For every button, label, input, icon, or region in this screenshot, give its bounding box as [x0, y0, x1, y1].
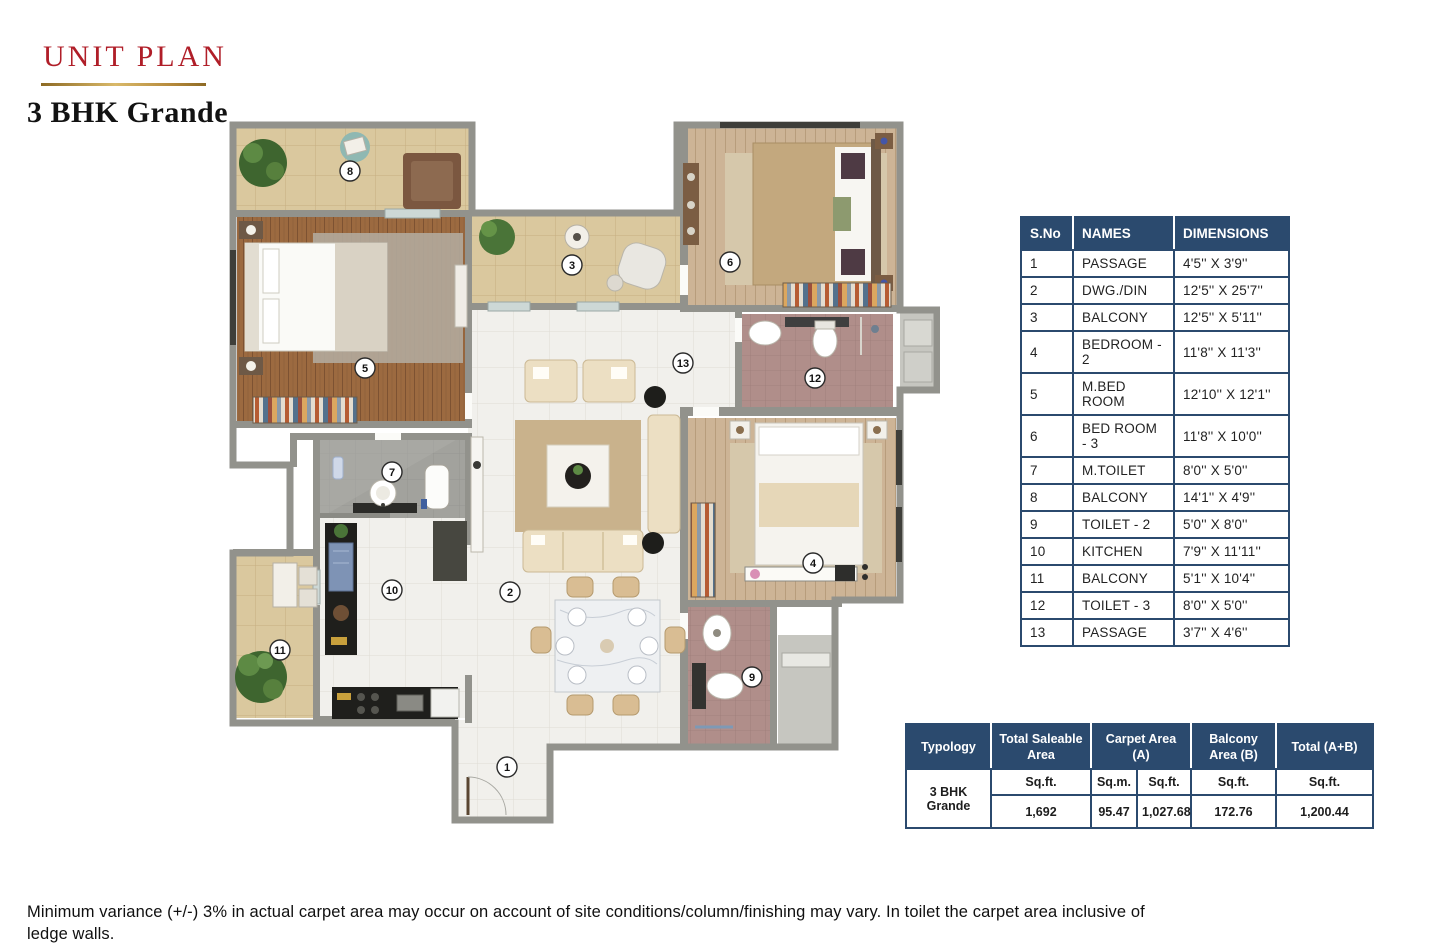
svg-text:8: 8 — [347, 166, 353, 178]
col-sno: S.No — [1021, 217, 1073, 250]
table-row: 6BED ROOM - 311'8'' X 10'0'' — [1021, 415, 1289, 457]
badge-room-10: 10 — [382, 580, 402, 600]
table-row: 3BALCONY12'5'' X 5'11'' — [1021, 304, 1289, 331]
unit-name: 3 BHK Grande — [27, 96, 228, 130]
svg-text:4: 4 — [810, 558, 817, 570]
utility-niche-top — [900, 313, 936, 387]
table-row: 7M.TOILET8'0'' X 5'0'' — [1021, 457, 1289, 484]
footer-note: Minimum variance (+/-) 3% in actual carp… — [27, 901, 1167, 949]
typology-value: 3 BHK Grande — [906, 769, 991, 828]
table-row: 8BALCONY14'1'' X 4'9'' — [1021, 484, 1289, 511]
badge-room-12: 12 — [805, 368, 825, 388]
page-title: UNIT PLAN — [43, 40, 228, 74]
unit-carpet-sqm: Sq.m. — [1091, 769, 1137, 795]
unit-balcony: Sq.ft. — [1191, 769, 1276, 795]
table-row: 12TOILET - 38'0'' X 5'0'' — [1021, 592, 1289, 619]
svg-text:5: 5 — [362, 363, 368, 375]
svg-text:13: 13 — [677, 358, 689, 370]
dimensions-table-body: 1PASSAGE4'5'' X 3'9''2DWG./DIN12'5'' X 2… — [1021, 250, 1289, 646]
value-carpet-sqft: 1,027.68 — [1137, 795, 1191, 828]
col-balcony: Balcony Area (B) — [1191, 724, 1276, 769]
badge-room-13: 13 — [673, 353, 693, 373]
svg-text:7: 7 — [389, 467, 395, 479]
units-row: 3 BHK Grande Sq.ft. Sq.m. Sq.ft. Sq.ft. … — [906, 769, 1373, 795]
badge-room-6: 6 — [720, 252, 740, 272]
footer-line-2: Floor Plan is for space planning purpose… — [27, 945, 1167, 949]
table-row: 4BEDROOM - 211'8'' X 11'3'' — [1021, 331, 1289, 373]
table-row: 9TOILET - 25'0'' X 8'0'' — [1021, 511, 1289, 538]
svg-text:2: 2 — [507, 587, 513, 599]
dimensions-table-header: S.No NAMES DIMENSIONS — [1021, 217, 1289, 250]
badge-room-3: 3 — [562, 255, 582, 275]
col-carpet: Carpet Area (A) — [1091, 724, 1191, 769]
footer-line-1: Minimum variance (+/-) 3% in actual carp… — [27, 901, 1167, 945]
badge-room-7: 7 — [382, 462, 402, 482]
badge-room-9: 9 — [742, 667, 762, 687]
col-typology: Typology — [906, 724, 991, 769]
table-row: 5M.BED ROOM12'10'' X 12'1'' — [1021, 373, 1289, 415]
title-block: UNIT PLAN 3 BHK Grande — [27, 40, 228, 130]
svg-text:12: 12 — [809, 373, 821, 385]
floor-plan-svg: 1 2 3 4 5 6 7 8 9 10 11 12 13 — [225, 115, 940, 840]
table-row: 11BALCONY5'1'' X 10'4'' — [1021, 565, 1289, 592]
value-saleable: 1,692 — [991, 795, 1091, 828]
unit-saleable: Sq.ft. — [991, 769, 1091, 795]
badge-room-8: 8 — [340, 161, 360, 181]
badge-room-1: 1 — [497, 757, 517, 777]
value-total: 1,200.44 — [1276, 795, 1373, 828]
unit-carpet-sqft: Sq.ft. — [1137, 769, 1191, 795]
value-balcony: 172.76 — [1191, 795, 1276, 828]
table-row: 2DWG./DIN12'5'' X 25'7'' — [1021, 277, 1289, 304]
svg-text:10: 10 — [386, 585, 398, 597]
col-dimensions: DIMENSIONS — [1174, 217, 1289, 250]
badge-room-4: 4 — [803, 553, 823, 573]
utility-niche-bottom — [778, 635, 835, 745]
svg-text:11: 11 — [274, 645, 286, 657]
svg-text:9: 9 — [749, 672, 755, 684]
table-row: 1PASSAGE4'5'' X 3'9'' — [1021, 250, 1289, 277]
table-row: 10KITCHEN7'9'' X 11'11'' — [1021, 538, 1289, 565]
area-summary-table: Typology Total Saleable Area Carpet Area… — [905, 723, 1374, 829]
col-total: Total (A+B) — [1276, 724, 1373, 769]
badge-room-2: 2 — [500, 582, 520, 602]
value-carpet-sqm: 95.47 — [1091, 795, 1137, 828]
svg-text:3: 3 — [569, 260, 575, 272]
col-saleable: Total Saleable Area — [991, 724, 1091, 769]
area-table-header: Typology Total Saleable Area Carpet Area… — [906, 724, 1373, 769]
badge-room-11: 11 — [270, 640, 290, 660]
badge-room-5: 5 — [355, 358, 375, 378]
svg-text:6: 6 — [727, 257, 733, 269]
table-row: 13PASSAGE3'7'' X 4'6'' — [1021, 619, 1289, 646]
gold-divider — [41, 83, 206, 86]
dimensions-table: S.No NAMES DIMENSIONS 1PASSAGE4'5'' X 3'… — [1020, 216, 1290, 647]
floor-plan: 1 2 3 4 5 6 7 8 9 10 11 12 13 — [225, 115, 940, 840]
unit-total: Sq.ft. — [1276, 769, 1373, 795]
svg-text:1: 1 — [504, 762, 510, 774]
col-names: NAMES — [1073, 217, 1174, 250]
